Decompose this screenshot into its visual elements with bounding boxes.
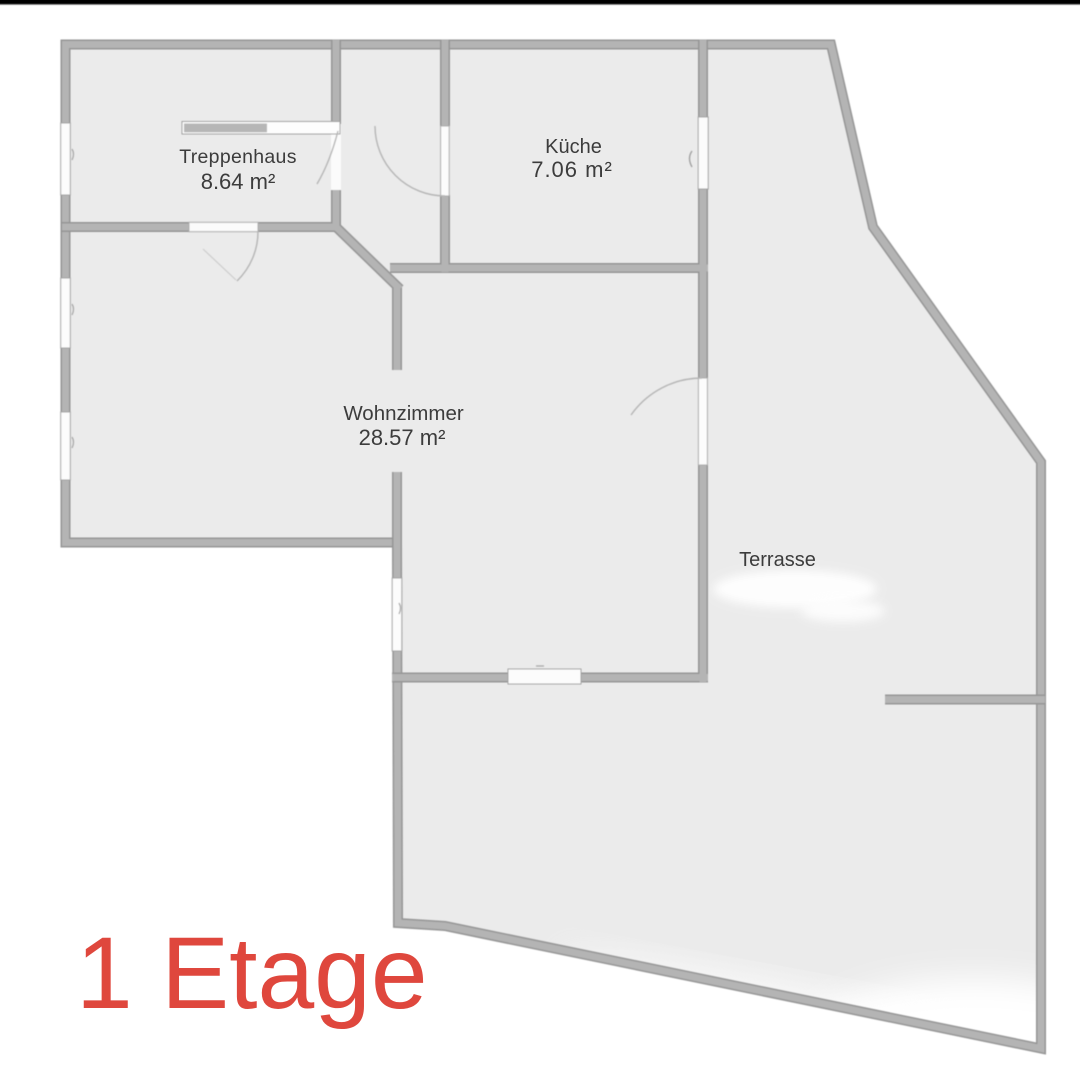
svg-text:Küche: Küche [545, 136, 602, 158]
svg-text:Wohnzimmer: Wohnzimmer [343, 402, 464, 425]
svg-text:Treppenhaus: Treppenhaus [179, 146, 297, 168]
svg-text:8.64 m²: 8.64 m² [201, 169, 276, 194]
svg-text:28.57 m²: 28.57 m² [359, 425, 446, 450]
svg-text:1 Etage: 1 Etage [76, 916, 428, 1030]
svg-text:Terrasse: Terrasse [739, 549, 816, 571]
svg-text:7.06 m²: 7.06 m² [531, 157, 613, 182]
